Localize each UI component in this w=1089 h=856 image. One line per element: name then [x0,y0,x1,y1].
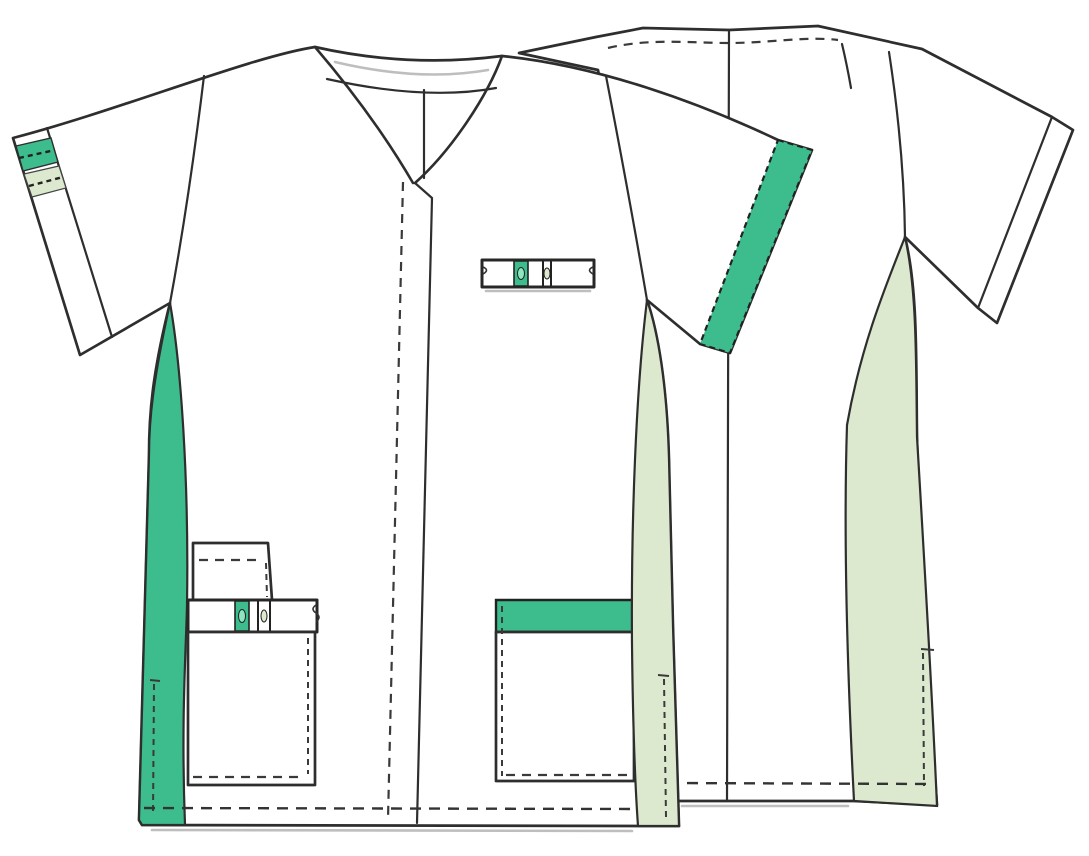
chest-pocket-green-button [518,268,525,280]
right-slit-tick [658,675,669,676]
back-slit-tick [921,649,934,650]
scrub-top-technical-drawing [0,0,1089,856]
left-band-green-button [239,610,246,623]
left-side-panel-green [139,303,187,825]
front-hem-shadow [152,830,632,831]
left-patch-pocket [188,632,315,785]
chest-pen-pocket [482,260,594,291]
left-slit-tick [150,680,160,681]
right-pocket-green-band [496,600,633,632]
left-band-pale-button [261,610,267,622]
chest-pocket-body [482,260,594,287]
right-pocket-body [496,632,634,781]
left-flap-pocket [193,543,272,600]
chest-pocket-pale-button [544,268,550,279]
garment-flat-canvas [0,0,1089,856]
left-band-pocket [188,600,317,632]
lower-right-pocket [496,600,634,781]
